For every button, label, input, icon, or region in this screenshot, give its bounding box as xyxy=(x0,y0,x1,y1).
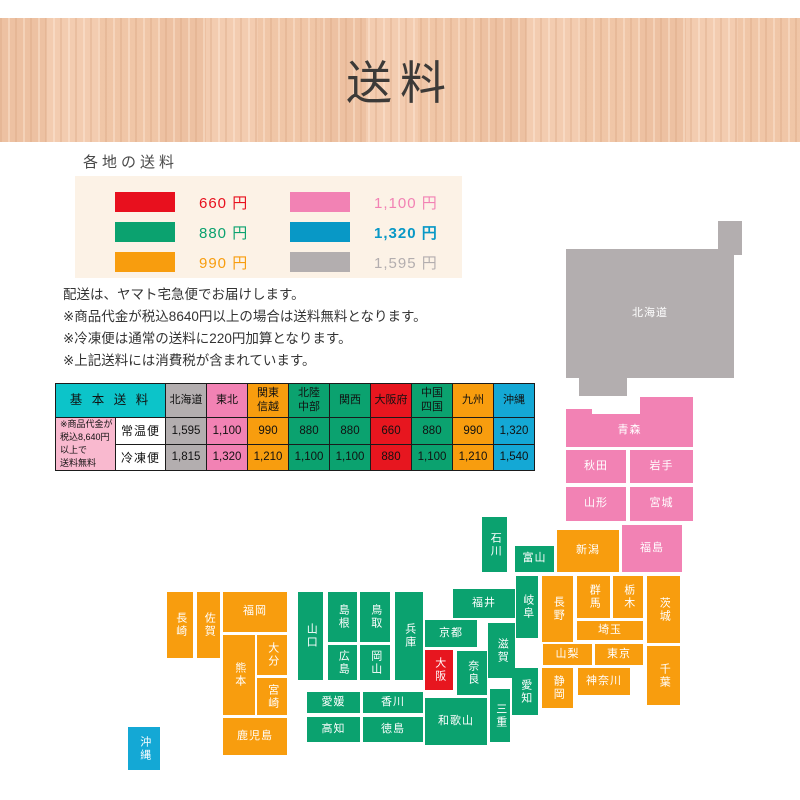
map-label-nagasaki: 長崎 xyxy=(174,612,186,638)
map-tile-miyagi: 宮城 xyxy=(630,487,693,521)
map-tile-shiga: 滋賀 xyxy=(488,623,515,678)
map-label-shiga: 滋賀 xyxy=(496,638,508,664)
map-tile-aomori-part1 xyxy=(640,397,693,414)
map-tile-toyama: 富山 xyxy=(515,546,554,572)
map-tile-tokyo: 東京 xyxy=(595,644,643,665)
map-label-ishikawa: 石川 xyxy=(489,532,501,558)
map-label-ehime: 愛媛 xyxy=(322,697,346,709)
map-label-nagano: 長野 xyxy=(552,596,564,622)
map-tile-oita: 大分 xyxy=(257,635,287,675)
map-tile-nagasaki: 長崎 xyxy=(167,592,193,658)
map-label-niigata: 新潟 xyxy=(576,545,600,557)
map-tile-fukuoka: 福岡 xyxy=(223,592,287,632)
map-tile-saga: 佐賀 xyxy=(197,592,220,658)
map-label-iwate: 岩手 xyxy=(650,461,674,473)
map-label-kagoshima: 鹿児島 xyxy=(237,731,273,743)
map-tile-akita: 秋田 xyxy=(566,450,626,483)
map-label-ibaraki: 茨城 xyxy=(658,597,670,623)
map-tile-tochigi: 栃木 xyxy=(613,576,643,618)
map-label-tokyo: 東京 xyxy=(607,649,631,661)
map-tile-hyogo: 兵庫 xyxy=(395,592,423,680)
map-label-akita: 秋田 xyxy=(584,461,608,473)
map-tile-gifu: 岐阜 xyxy=(516,576,538,638)
map-tile-fukushima: 福島 xyxy=(622,525,682,572)
map-label-fukushima: 福島 xyxy=(640,543,664,555)
map-label-yamanashi: 山梨 xyxy=(556,649,580,661)
map-label-tottori: 鳥取 xyxy=(369,604,381,630)
map-label-kanagawa: 神奈川 xyxy=(586,676,622,688)
map-tile-okayama: 岡山 xyxy=(360,645,390,680)
map-tile-niigata: 新潟 xyxy=(557,530,619,572)
map-label-saitama: 埼玉 xyxy=(598,625,622,637)
map-tile-osaka: 大阪 xyxy=(425,650,453,690)
japan-map: 北海道青森秋田岩手山形宮城福島新潟石川富山福井岐阜長野群馬栃木茨城埼玉山梨東京千… xyxy=(0,0,800,800)
map-label-hyogo: 兵庫 xyxy=(403,623,415,649)
map-label-gifu: 岐阜 xyxy=(521,594,533,620)
map-tile-chiba: 千葉 xyxy=(647,646,680,705)
map-label-miyagi: 宮城 xyxy=(650,498,674,510)
map-label-kagawa: 香川 xyxy=(381,697,405,709)
map-tile-kanagawa: 神奈川 xyxy=(578,668,630,695)
map-label-gunma: 群馬 xyxy=(588,584,600,610)
map-tile-miyazaki: 宮崎 xyxy=(257,678,287,715)
map-label-tochigi: 栃木 xyxy=(622,584,634,610)
map-label-okinawa: 沖縄 xyxy=(138,736,150,762)
map-label-kyoto: 京都 xyxy=(439,628,463,640)
map-label-miyazaki: 宮崎 xyxy=(266,684,278,710)
shipping-info-page: 送料 各地の送料 660 円 1,100 円 880 円 1,320 円 990… xyxy=(0,0,800,800)
map-label-hokkaido: 北海道 xyxy=(632,308,668,320)
map-label-fukui: 福井 xyxy=(472,598,496,610)
map-tile-yamaguchi: 山口 xyxy=(298,592,323,680)
map-tile-ehime: 愛媛 xyxy=(307,692,360,713)
map-tile-ishikawa: 石川 xyxy=(482,517,507,572)
map-label-yamagata: 山形 xyxy=(584,498,608,510)
map-label-shimane: 島根 xyxy=(337,604,349,630)
map-tile-mie: 三重 xyxy=(490,689,510,742)
map-label-saga: 佐賀 xyxy=(203,612,215,638)
map-label-aichi: 愛知 xyxy=(519,679,531,705)
map-label-yamaguchi: 山口 xyxy=(305,623,317,649)
map-tile-ibaraki: 茨城 xyxy=(647,576,680,643)
map-tile-aomori: 青森 xyxy=(566,414,693,447)
map-label-shizuoka: 静岡 xyxy=(552,675,564,701)
map-label-fukuoka: 福岡 xyxy=(243,606,267,618)
map-tile-iwate: 岩手 xyxy=(630,450,693,483)
map-label-hiroshima: 広島 xyxy=(337,650,349,676)
map-tile-kumamoto: 熊本 xyxy=(223,635,255,715)
map-tile-kagawa: 香川 xyxy=(363,692,423,713)
map-tile-fukui: 福井 xyxy=(453,589,515,618)
map-tile-saitama: 埼玉 xyxy=(577,621,643,640)
map-tile-kyoto: 京都 xyxy=(425,620,477,647)
map-label-kochi: 高知 xyxy=(322,724,346,736)
map-label-kumamoto: 熊本 xyxy=(233,662,245,688)
map-tile-tottori: 鳥取 xyxy=(360,592,390,642)
map-label-tokushima: 徳島 xyxy=(381,724,405,736)
map-tile-hiroshima: 広島 xyxy=(328,645,357,680)
map-label-toyama: 富山 xyxy=(523,553,547,565)
map-tile-tokushima: 徳島 xyxy=(363,717,423,742)
map-tile-kochi: 高知 xyxy=(307,717,360,742)
map-label-mie: 三重 xyxy=(494,703,506,729)
map-tile-shizuoka: 静岡 xyxy=(542,668,573,708)
map-tile-hokkaido-part1 xyxy=(579,378,627,396)
map-tile-hokkaido: 北海道 xyxy=(566,249,734,378)
map-label-oita: 大分 xyxy=(266,642,278,668)
map-label-osaka: 大阪 xyxy=(433,657,445,683)
map-tile-gunma: 群馬 xyxy=(577,576,610,618)
map-tile-yamanashi: 山梨 xyxy=(543,644,592,665)
map-tile-aichi: 愛知 xyxy=(512,668,538,715)
map-tile-wakayama: 和歌山 xyxy=(425,698,487,745)
map-label-wakayama: 和歌山 xyxy=(438,716,474,728)
map-tile-nara: 奈良 xyxy=(457,651,487,695)
map-label-chiba: 千葉 xyxy=(658,663,670,689)
map-label-aomori: 青森 xyxy=(618,425,642,437)
map-label-okayama: 岡山 xyxy=(369,650,381,676)
map-tile-nagano: 長野 xyxy=(542,576,573,642)
map-tile-shimane: 島根 xyxy=(328,592,357,642)
map-tile-yamagata: 山形 xyxy=(566,487,626,521)
map-tile-kagoshima: 鹿児島 xyxy=(223,718,287,755)
map-label-nara: 奈良 xyxy=(466,660,478,686)
map-tile-okinawa: 沖縄 xyxy=(128,727,160,770)
